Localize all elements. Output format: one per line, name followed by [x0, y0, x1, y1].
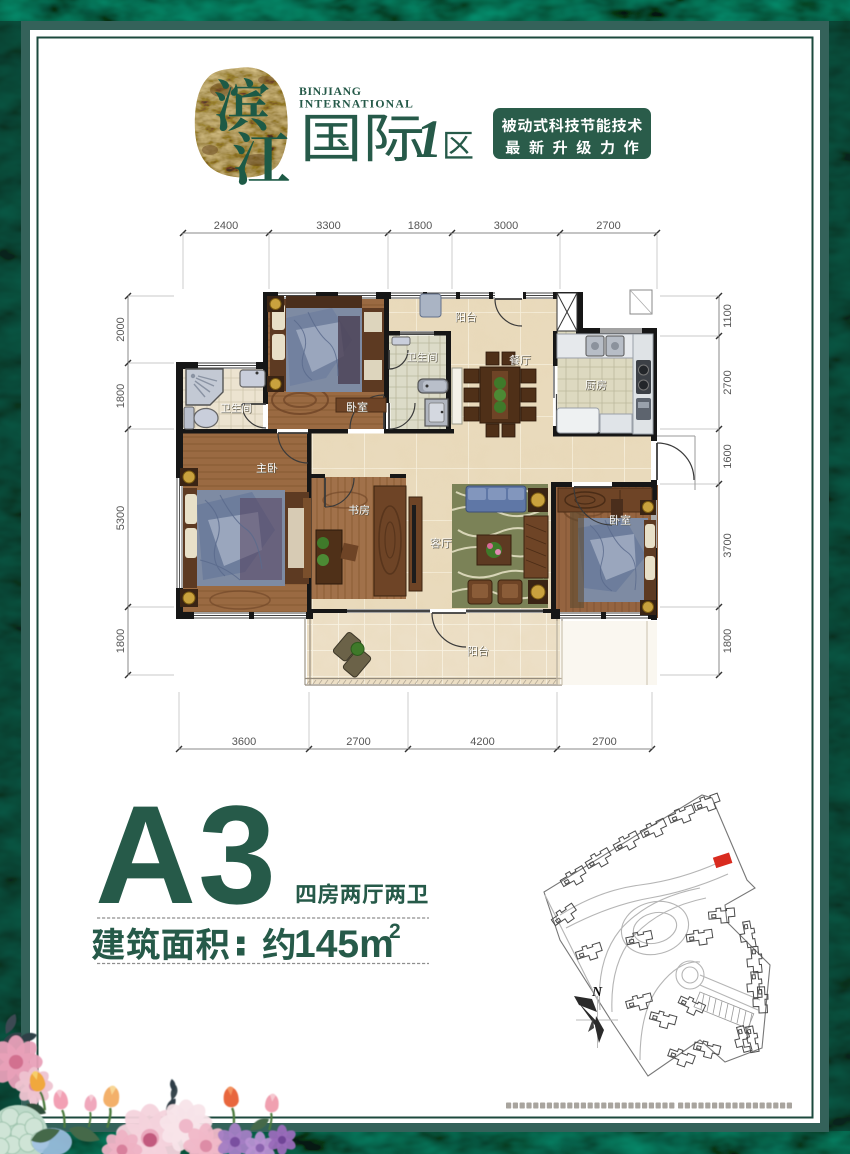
svg-text:N: N — [591, 985, 603, 1000]
svg-text:1800: 1800 — [115, 629, 127, 653]
svg-text:1800: 1800 — [408, 220, 432, 232]
svg-text:145m: 145m — [294, 923, 394, 966]
svg-text:3000: 3000 — [494, 220, 518, 232]
svg-text:2000: 2000 — [115, 317, 127, 341]
svg-text:2400: 2400 — [214, 220, 238, 232]
svg-text:3300: 3300 — [316, 220, 340, 232]
svg-text:4200: 4200 — [470, 736, 494, 748]
svg-text:2700: 2700 — [596, 220, 620, 232]
svg-text:2700: 2700 — [592, 736, 616, 748]
svg-text:1600: 1600 — [722, 444, 734, 468]
svg-text:1800: 1800 — [115, 384, 127, 408]
svg-text:2: 2 — [389, 920, 401, 943]
svg-text:2700: 2700 — [346, 736, 370, 748]
svg-text:1100: 1100 — [722, 304, 734, 328]
svg-text:1800: 1800 — [722, 629, 734, 653]
svg-text:3700: 3700 — [722, 533, 734, 557]
svg-text:INTERNATIONAL: INTERNATIONAL — [299, 97, 414, 111]
svg-text:3600: 3600 — [232, 736, 256, 748]
svg-text:2700: 2700 — [722, 370, 734, 394]
svg-text:5300: 5300 — [115, 506, 127, 530]
svg-text:1: 1 — [416, 109, 443, 169]
svg-text:A3: A3 — [95, 776, 278, 933]
